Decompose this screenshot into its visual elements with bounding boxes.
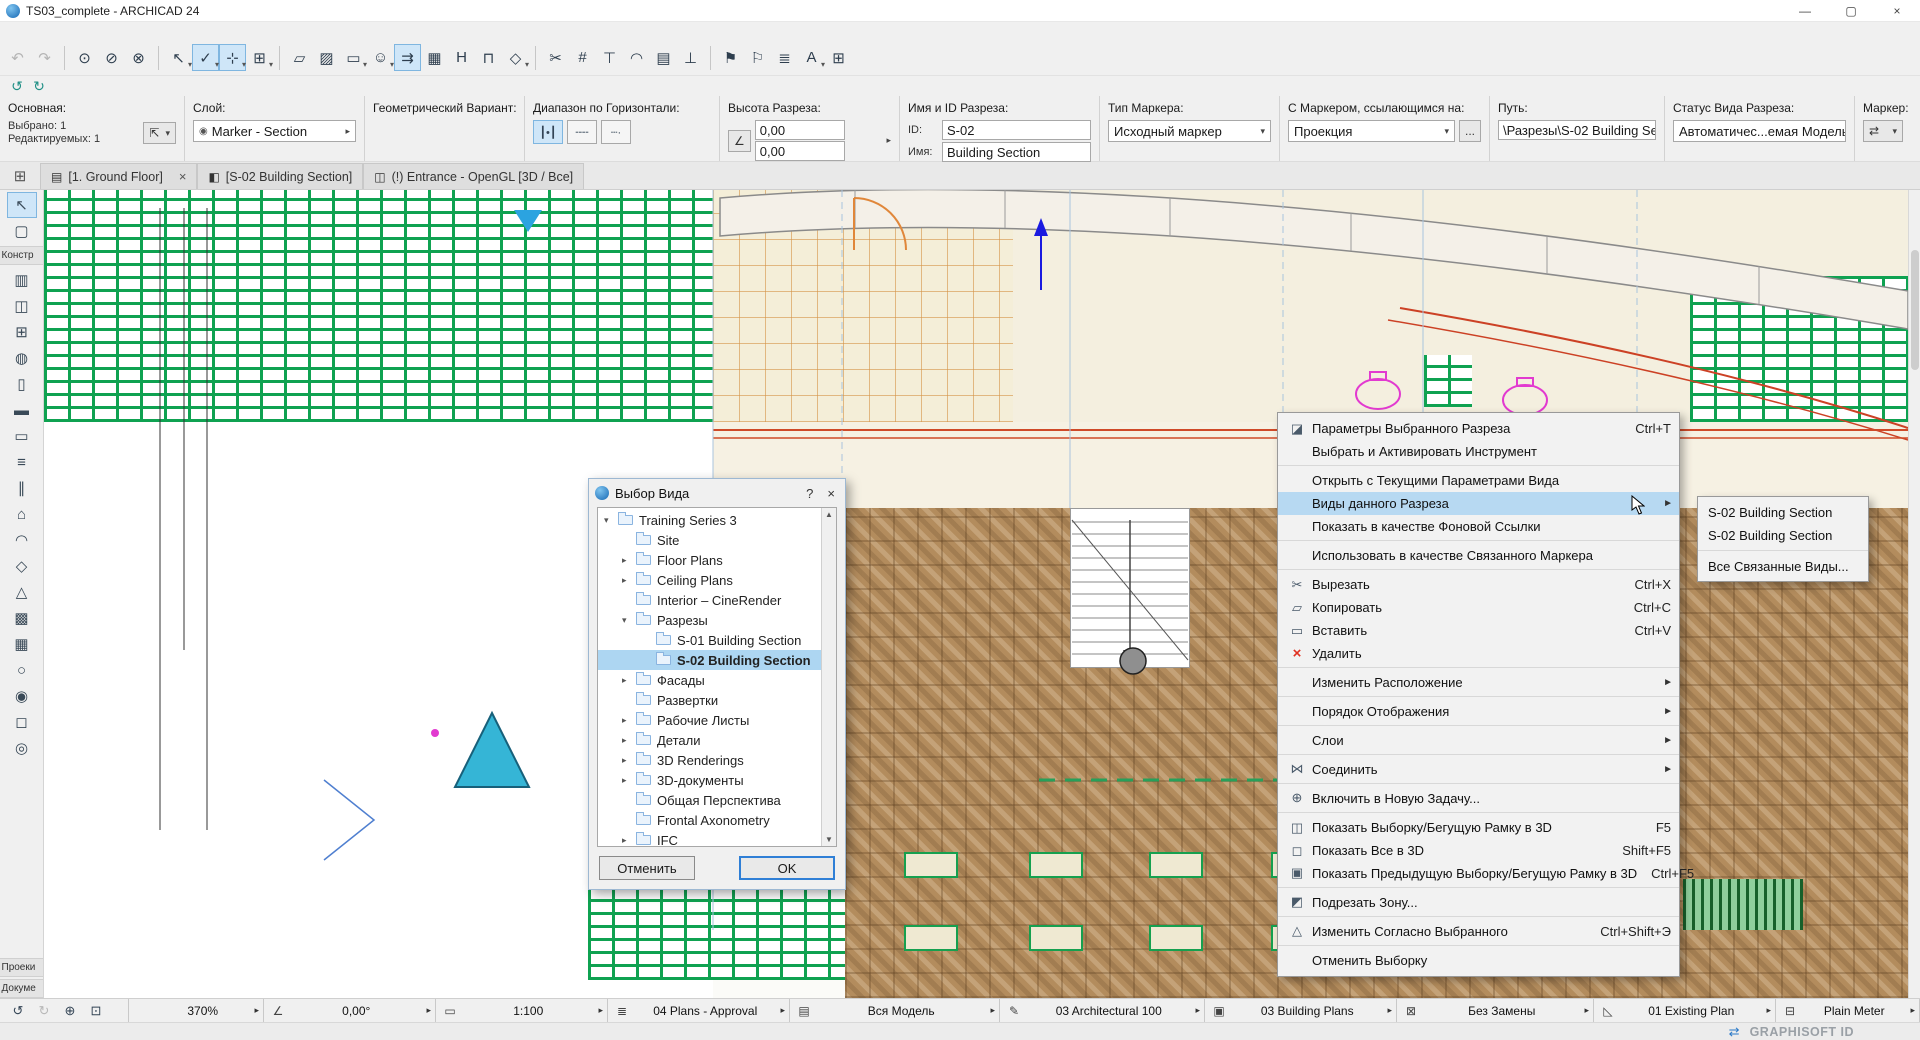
flyout-arrow-icon[interactable]: ▸: [1582, 1005, 1589, 1016]
segment-icon: ⊟: [1780, 1004, 1800, 1018]
slab-tool[interactable]: ▭: [7, 423, 37, 449]
dialog-title: Выбор Вида: [615, 486, 689, 501]
folder-icon: [636, 675, 651, 685]
tree-item-interior-cinerender[interactable]: Interior – CineRender: [598, 590, 836, 610]
infobar-section-basic: Основная: Выбрано: 1 Редактируемых: 1 ⇱▾: [0, 96, 185, 161]
status-bar: ↺↻⊕⊡ 370% ▸ ∠ 0,00° ▸ ▭ 1:100 ▸ ≣ 04 Pla…: [0, 998, 1920, 1022]
folder-icon: [636, 595, 651, 605]
scrollbar-thumb[interactable]: [1911, 250, 1919, 370]
segment-icon: ✎: [1004, 1004, 1024, 1018]
info-bar: Основная: Выбрано: 1 Редактируемых: 1 ⇱▾…: [0, 96, 1920, 162]
menu-item-icon: ▱: [1282, 600, 1312, 616]
vertical-scrollbar[interactable]: [1908, 190, 1920, 998]
flyout-arrow-icon[interactable]: ▸: [1385, 1005, 1392, 1016]
menu-shortcut: Ctrl+Shift+Э: [1586, 924, 1671, 939]
tab-ground-floor[interactable]: ▤ [1. Ground Floor] ×: [40, 163, 197, 189]
update-icon[interactable]: ↻: [28, 77, 50, 95]
arrow-tool[interactable]: ↖: [7, 192, 37, 218]
chevron-down-icon: ▾: [1254, 126, 1265, 137]
folder-icon: [636, 835, 651, 845]
infobar-section-marker-reference: С Маркером, ссылающимся на: Проекция ▾ .…: [1280, 96, 1490, 161]
infobar-section-marker-type: Тип Маркера: Исходный маркер ▾: [1100, 96, 1280, 161]
flyout-arrow-icon[interactable]: ▸: [252, 1005, 259, 1016]
layer-combo[interactable]: ◉ Marker - Section ▸: [193, 120, 356, 142]
brand-bar: ⇄ GRAPHISOFT ID: [0, 1022, 1920, 1040]
more-options-button[interactable]: ...: [1459, 120, 1481, 142]
view-tree: ▾ Training Series 3 Site ▸ Floor Plans ▸…: [597, 507, 837, 847]
section-marker-triangle[interactable]: [455, 713, 529, 787]
tree-item-training-series-3[interactable]: ▾ Training Series 3: [598, 510, 836, 530]
box-tool-icon[interactable]: ▭ ▾: [340, 44, 367, 71]
dimension-style-segment[interactable]: ⊟ Plain Meter ▸: [1776, 999, 1920, 1022]
tab-icon: ◧: [208, 170, 219, 184]
menu-item-copy[interactable]: ▱ Копировать Ctrl+C ►: [1278, 596, 1679, 619]
flag-icon[interactable]: ⚑ ▾: [717, 44, 744, 71]
scroll-up-icon[interactable]: ▲: [825, 510, 833, 519]
tab-entrance-opengl-3d[interactable]: ◫ (!) Entrance - OpenGL [3D / Все] ×: [363, 163, 584, 189]
snap-point-icon[interactable]: ⊙ ▾: [71, 44, 98, 71]
flyout-arrow-icon[interactable]: ▸: [988, 1005, 995, 1016]
palette-group-document[interactable]: Докуме: [0, 979, 44, 998]
menu-item-trim-zone[interactable]: ◩ Подрезать Зону... ►: [1278, 891, 1679, 917]
layers-book-icon[interactable]: ≣ ▾: [771, 44, 798, 71]
menu-item-include-in-new-task[interactable]: ⊕ Включить в Новую Задачу... ►: [1278, 787, 1679, 813]
marquee-tool[interactable]: ▢: [7, 218, 37, 244]
menu-item-icon: △: [1282, 923, 1312, 939]
tree-item-details[interactable]: ▸ Детали: [598, 730, 836, 750]
menu-item-paste[interactable]: ▭ Вставить Ctrl+V ►: [1278, 619, 1679, 642]
menu-item-move[interactable]: Изменить Расположение ►: [1278, 671, 1679, 697]
menu-item-icon: ⋈: [1282, 761, 1312, 777]
flyout-arrow-icon[interactable]: ▸: [1908, 1005, 1915, 1016]
menu-item-section-settings[interactable]: ◪ Параметры Выбранного Разреза Ctrl+T ►: [1278, 417, 1679, 440]
fillet-icon[interactable]: ◠ ▾: [623, 44, 650, 71]
hrange-zero-button[interactable]: ┄·: [601, 120, 631, 144]
tab-icon: ▤: [51, 170, 62, 184]
toolbar-separator[interactable]: ▾: [64, 46, 65, 70]
submenu-arrow-icon: ►: [1663, 735, 1673, 746]
tree-chevron-icon[interactable]: ▾: [604, 515, 618, 526]
infobar-section-view-status: Статус Вида Разреза: Автоматичес...емая …: [1665, 96, 1855, 161]
marker-default-button[interactable]: ⇱▾: [143, 122, 176, 144]
tree-chevron-icon[interactable]: ▸: [622, 755, 636, 766]
context-menu: ◪ Параметры Выбранного Разреза Ctrl+T ► …: [1277, 412, 1680, 977]
zoom-in-icon[interactable]: ⊕: [58, 1001, 82, 1021]
graphisoft-id-label[interactable]: GRAPHISOFT ID: [1750, 1025, 1854, 1039]
undo-icon[interactable]: ↶ ▾: [4, 44, 31, 71]
section-height-icon[interactable]: ∠: [728, 130, 751, 152]
roof-band: [720, 190, 1908, 329]
height-bottom-field[interactable]: 0,00: [755, 141, 845, 161]
tree-chevron-icon[interactable]: ▸: [622, 675, 636, 686]
menu-item-deselect-all[interactable]: Отменить Выборку ►: [1278, 949, 1679, 972]
segment-icon: ▤: [794, 1004, 814, 1018]
split-icon[interactable]: ✂ ▾: [542, 44, 569, 71]
camera-tool[interactable]: ◎: [7, 735, 37, 761]
folder-icon: [636, 735, 651, 745]
select-icon[interactable]: ↖ ▾: [165, 44, 192, 71]
section-name-field[interactable]: Building Section: [942, 142, 1091, 162]
eye-icon: ◉: [199, 126, 208, 137]
tab-s02-building-section[interactable]: ◧ [S-02 Building Section] ×: [197, 163, 363, 189]
menu-item-cut[interactable]: ✂ Вырезать Ctrl+X ►: [1278, 573, 1679, 596]
menu-item-icon: ×: [1282, 645, 1312, 662]
path-field[interactable]: \Разрезы\S-02 Building Section (: [1498, 120, 1656, 140]
tree-item-elevations[interactable]: ▸ Фасады: [598, 670, 836, 690]
close-button[interactable]: ×: [1874, 0, 1920, 21]
flyout-arrow-icon[interactable]: ▸: [596, 1005, 603, 1016]
zoom-level-segment[interactable]: 370% ▸: [129, 999, 264, 1022]
flyout-arrow-icon[interactable]: ▸: [778, 1005, 785, 1016]
menu-item-icon: ✂: [1282, 577, 1312, 593]
tab-overview-button[interactable]: ⊞: [0, 163, 40, 189]
polygon-icon[interactable]: ▱ ▾: [286, 44, 313, 71]
curtain-wall-tool[interactable]: ▦: [7, 631, 37, 657]
intersect-icon[interactable]: ⊥ ▾: [677, 44, 704, 71]
fixture-icon[interactable]: ⊓ ▾: [475, 44, 502, 71]
flyout-arrow-icon[interactable]: ▸: [1193, 1005, 1200, 1016]
segment-icon: ≣: [612, 1004, 632, 1018]
roof-tool[interactable]: ⌂: [7, 501, 37, 527]
walk-mode-icon[interactable]: ⇉ ▾: [394, 44, 421, 71]
tree-item-generic-perspective[interactable]: Общая Перспектива: [598, 790, 836, 810]
snap-guides-icon[interactable]: ✓ ▾: [192, 44, 219, 71]
fit-in-window-icon[interactable]: ⊡: [84, 1001, 108, 1021]
section-id-field[interactable]: S-02: [942, 120, 1091, 140]
toolbar-separator[interactable]: ▾: [158, 46, 159, 70]
door-tool[interactable]: ◫: [7, 293, 37, 319]
menu-item-icon: ⊕: [1282, 790, 1312, 806]
dialog-scrollbar[interactable]: ▲ ▼: [821, 508, 836, 846]
menu-item-select-activate-tool[interactable]: Выбрать и Активировать Инструмент ►: [1278, 440, 1679, 466]
favorites-icon[interactable]: ◇ ▾: [502, 44, 529, 71]
submenu-arrow-icon: ►: [1663, 706, 1673, 717]
hrange-limited-button[interactable]: ╌╌: [567, 120, 597, 144]
marker-type-combo[interactable]: Исходный маркер ▾: [1108, 120, 1271, 142]
submenu-item-all-linked-views[interactable]: Все Связанные Виды...: [1698, 554, 1868, 578]
infobar-section-height: Высота Разреза: ∠ 0,00 0,00 ▸: [720, 96, 900, 161]
marker-reference-combo[interactable]: Проекция ▾: [1288, 120, 1455, 142]
blocks-icon[interactable]: ▦ ▾: [421, 44, 448, 71]
menu-item-icon: ◫: [1282, 820, 1312, 836]
archicad-logo-icon: [595, 486, 609, 500]
view-status-combo[interactable]: Автоматичес...емая Модель ▾: [1673, 120, 1846, 142]
skylight-tool[interactable]: ◍: [7, 345, 37, 371]
red-roof-arc: [1400, 308, 1908, 428]
view-selection-dialog: Выбор Вида ? × ▾ Training Series 3 Site …: [588, 478, 846, 890]
object-tool[interactable]: ○: [7, 657, 37, 683]
ok-button[interactable]: OK: [739, 856, 835, 880]
tree-item-ifc[interactable]: ▸ IFC: [598, 830, 836, 847]
layer-combination-segment[interactable]: ≣ 04 Plans - Approval ▸: [608, 999, 790, 1022]
folder-icon: [636, 615, 651, 625]
grid-element-icon[interactable]: H ▾: [448, 44, 475, 71]
chevron-right-icon[interactable]: ▸: [880, 135, 891, 146]
menu-item-delete[interactable]: × Удалить ►: [1278, 642, 1679, 668]
tool-palette: ↖▢ Констр ▥◫⊞◍▯▬▭≡∥⌂◠◇△▩▦○◉◻◎ Проеки Док…: [0, 190, 44, 998]
selected-count: Выбрано: 1: [8, 120, 100, 133]
hrange-infinite-button[interactable]: ┃•┃: [533, 120, 563, 144]
submenu-arrow-icon: ►: [1663, 677, 1673, 688]
sync-icon[interactable]: ⇄: [1729, 1024, 1740, 1040]
profile-icon[interactable]: ☺ ▾: [367, 44, 394, 71]
menu-shortcut: Ctrl+X: [1621, 577, 1671, 592]
folder-icon: [636, 575, 651, 585]
infobar-section-marker: Маркер: ⇄▾: [1855, 96, 1920, 161]
folder-icon: [636, 535, 651, 545]
minimize-button[interactable]: —: [1782, 0, 1828, 21]
beam-tool[interactable]: ▬: [7, 397, 37, 423]
tab-icon: ◫: [374, 170, 385, 184]
secondary-toolbar: ↺↻: [0, 76, 1920, 96]
dialog-close-icon[interactable]: ×: [827, 486, 835, 501]
structure-filter-segment[interactable]: ▤ Вся Модель ▸: [790, 999, 1000, 1022]
dimension-lines: [160, 208, 207, 830]
menu-item-show-previous-selection-in-3d[interactable]: ▣ Показать Предыдущую Выборку/Бегущую Ра…: [1278, 862, 1679, 888]
flyout-arrow-icon[interactable]: ▸: [1764, 1005, 1771, 1016]
menu-item-open-with-current-view-settings[interactable]: Открыть с Текущими Параметрами Вида ►: [1278, 469, 1679, 492]
menu-item-layers[interactable]: Слои ►: [1278, 729, 1679, 755]
submenu-item-s02-building-section[interactable]: S-02 Building Section: [1698, 500, 1868, 524]
toolbar-separator[interactable]: ▾: [279, 46, 280, 70]
menu-shortcut: Shift+F5: [1608, 843, 1671, 858]
tab-bar: ⊞ ▤ [1. Ground Floor] × ◧ [S-02 Building…: [0, 162, 1920, 190]
level-marker-icon: [514, 210, 542, 232]
mesh-tool[interactable]: △: [7, 579, 37, 605]
folder-icon: [636, 695, 651, 705]
column-tool[interactable]: ▯: [7, 371, 37, 397]
tree-item-floor-plans[interactable]: ▸ Floor Plans: [598, 550, 836, 570]
redo-icon[interactable]: ↷ ▾: [31, 44, 58, 71]
infobar-section-path: Путь: \Разрезы\S-02 Building Section (: [1490, 96, 1665, 161]
flag-outline-icon[interactable]: ⚐ ▾: [744, 44, 771, 71]
dialog-title-bar[interactable]: Выбор Вида ? ×: [589, 479, 845, 507]
tree-item-interior-elevations[interactable]: Развертки: [598, 690, 836, 710]
menu-item-icon: ◪: [1282, 421, 1312, 437]
menu-bar: [0, 22, 1920, 40]
toilet-symbol: [1503, 378, 1547, 415]
segment-icon: ▣: [1209, 1004, 1229, 1018]
window-tool[interactable]: ⊞: [7, 319, 37, 345]
tab-close-icon[interactable]: ×: [179, 169, 187, 184]
editable-count: Редактируемых: 1: [8, 133, 100, 146]
palette-group-views[interactable]: Проеки: [0, 958, 44, 977]
menu-item-icon: ◻: [1282, 843, 1312, 859]
views-submenu: S-02 Building SectionS-02 Building Secti…: [1697, 496, 1869, 582]
tree-chevron-icon[interactable]: ▸: [622, 715, 636, 726]
infobar-section-layer: Слой: ◉ Marker - Section ▸: [185, 96, 365, 161]
adjust-icon[interactable]: # ▾: [569, 44, 596, 71]
submenu-arrow-icon: ►: [1663, 498, 1673, 509]
renovation-override-segment[interactable]: ⊠ Без Замены ▸: [1397, 999, 1594, 1022]
stair-tool[interactable]: ≡: [7, 449, 37, 475]
section-line-chevron: [324, 780, 374, 860]
scroll-down-icon[interactable]: ▼: [825, 835, 833, 844]
segment-icon: ▭: [440, 1004, 460, 1018]
folder-icon: [636, 755, 651, 765]
menu-shortcut: Ctrl+V: [1621, 623, 1671, 638]
menu-item-icon: ◩: [1282, 894, 1312, 910]
renovation-filter-segment[interactable]: ◺ 01 Existing Plan ▸: [1594, 999, 1776, 1022]
submenu-arrow-icon: ►: [1663, 764, 1673, 775]
title-bar: TS03_complete - ARCHICAD 24 — ▢ ×: [0, 0, 1920, 22]
folder-icon: [636, 775, 651, 785]
orientation-segment[interactable]: ∠ 0,00° ▸: [264, 999, 436, 1022]
tree-chevron-icon[interactable]: ▸: [622, 555, 636, 566]
segment-icon: ∠: [268, 1004, 288, 1018]
folder-icon: [618, 515, 633, 525]
menu-item-display-order[interactable]: Порядок Отображения ►: [1278, 700, 1679, 726]
folder-icon: [656, 655, 671, 665]
menu-item-icon: ▣: [1282, 865, 1312, 881]
lamp-tool[interactable]: ◉: [7, 683, 37, 709]
folder-icon: [636, 815, 651, 825]
menu-item-modify-according-to-selected[interactable]: △ Изменить Согласно Выбранного Ctrl+Shif…: [1278, 920, 1679, 946]
menu-item-views-of-this-section[interactable]: Виды данного Разреза ►: [1278, 492, 1679, 515]
snap-cursor-icon[interactable]: ⊹ ▾: [219, 44, 246, 71]
toolbar-separator[interactable]: ▾: [710, 46, 711, 70]
chevron-right-icon: ▸: [339, 126, 350, 137]
railing-tool[interactable]: ∥: [7, 475, 37, 501]
menu-shortcut: Ctrl+F5: [1637, 866, 1694, 881]
tree-chevron-icon[interactable]: ▾: [622, 615, 636, 626]
chevron-down-icon: ▾: [1438, 126, 1449, 137]
tree-chevron-icon[interactable]: ▸: [622, 575, 636, 586]
segment-icon: ◺: [1598, 1004, 1618, 1018]
menu-item-use-as-linked-marker[interactable]: Использовать в качестве Связанного Марке…: [1278, 544, 1679, 570]
tree-item-worksheets[interactable]: ▸ Рабочие Листы: [598, 710, 836, 730]
infobar-section-name-id: Имя и ID Разреза: ID: S-02 Имя: Building…: [900, 96, 1100, 161]
zone-tool[interactable]: ▩: [7, 605, 37, 631]
menu-shortcut: Ctrl+C: [1620, 600, 1671, 615]
view-forward-icon[interactable]: ↻: [32, 1001, 56, 1021]
folder-icon: [656, 635, 671, 645]
menu-item-show-all-in-3d[interactable]: ◻ Показать Все в 3D Shift+F5 ►: [1278, 839, 1679, 862]
height-top-field[interactable]: 0,00: [755, 120, 845, 140]
wall-tool[interactable]: ▥: [7, 267, 37, 293]
menu-item-show-as-trace-reference[interactable]: Показать в качестве Фоновой Ссылки ►: [1278, 515, 1679, 541]
pen-set-segment[interactable]: ✎ 03 Architectural 100 ▸: [1000, 999, 1205, 1022]
tree-item-3d-documents[interactable]: ▸ 3D-документы: [598, 770, 836, 790]
flyout-arrow-icon[interactable]: ▸: [424, 1005, 431, 1016]
suspend-groups-icon[interactable]: ⊘ ▾: [98, 44, 125, 71]
shell-tool[interactable]: ◠: [7, 527, 37, 553]
tree-item-ceiling-plans[interactable]: ▸ Ceiling Plans: [598, 570, 836, 590]
menu-item-connect[interactable]: ⋈ Соединить ►: [1278, 758, 1679, 784]
tree-item-s02-building-section[interactable]: S-02 Building Section: [598, 650, 836, 670]
palette-group-design[interactable]: Констр: [0, 246, 44, 265]
menu-item-show-selection-in-3d[interactable]: ◫ Показать Выборку/Бегущую Рамку в 3D F5…: [1278, 816, 1679, 839]
tree-chevron-icon[interactable]: ▸: [622, 735, 636, 746]
submenu-item-s02-building-section-2[interactable]: S-02 Building Section: [1698, 524, 1868, 551]
window-title: TS03_complete - ARCHICAD 24: [26, 4, 199, 18]
archicad-logo-icon: [6, 4, 20, 18]
dialog-help-button[interactable]: ?: [806, 486, 813, 501]
folder-icon: [636, 555, 651, 565]
scale-segment[interactable]: ▭ 1:100 ▸: [436, 999, 608, 1022]
main-toolbar: ↶ ▾ ↷ ▾ ▾ ⊙ ▾ ⊘ ▾ ⊗ ▾ ▾ ↖ ▾ ✓ ▾ ⊹ ▾ ⊞ ▾ …: [0, 40, 1920, 76]
menu-shortcut: F5: [1642, 820, 1671, 835]
rebuild-icon[interactable]: ↺: [6, 77, 28, 95]
graphic-override-segment[interactable]: ▣ 03 Building Plans ▸: [1205, 999, 1397, 1022]
cancel-button[interactable]: Отменить: [599, 856, 695, 880]
autogroup-icon[interactable]: ⊗ ▾: [125, 44, 152, 71]
selection-dot: [431, 729, 439, 737]
tree-chevron-icon[interactable]: ▸: [622, 835, 636, 846]
morph-tool[interactable]: ◇: [7, 553, 37, 579]
tree-item-3d-renderings[interactable]: ▸ 3D Renderings: [598, 750, 836, 770]
column-circle: [1120, 648, 1146, 674]
infobar-section-horizontal-range: Диапазон по Горизонтали: ┃•┃╌╌┄·: [525, 96, 720, 161]
menu-item-icon: ▭: [1282, 623, 1312, 639]
folder-icon: [636, 795, 651, 805]
grid-dialog-icon[interactable]: ⊞ ▾: [825, 44, 852, 71]
marker-style-icon[interactable]: A ▾: [798, 44, 825, 71]
resize-icon[interactable]: ▤ ▾: [650, 44, 677, 71]
fill-icon[interactable]: ▨ ▾: [313, 44, 340, 71]
folder-icon: [636, 715, 651, 725]
tree-item-frontal-axonometry[interactable]: Frontal Axonometry: [598, 810, 836, 830]
infobar-section-geometry: Геометрический Вариант:: [365, 96, 525, 161]
segment-icon: ⊠: [1401, 1004, 1421, 1018]
menu-shortcut: Ctrl+T: [1621, 421, 1671, 436]
opening-tool[interactable]: ◻: [7, 709, 37, 735]
marker-button[interactable]: ⇄▾: [1863, 120, 1903, 142]
view-back-icon[interactable]: ↺: [6, 1001, 30, 1021]
tsquare-icon[interactable]: ⊤ ▾: [596, 44, 623, 71]
grid-snap-icon[interactable]: ⊞ ▾: [246, 44, 273, 71]
tree-item-sections[interactable]: ▾ Разрезы: [598, 610, 836, 630]
tree-item-site[interactable]: Site: [598, 530, 836, 550]
tree-item-s01-building-section[interactable]: S-01 Building Section: [598, 630, 836, 650]
toilet-symbol: [1356, 372, 1400, 409]
toolbar-separator[interactable]: ▾: [535, 46, 536, 70]
tree-chevron-icon[interactable]: ▸: [622, 775, 636, 786]
maximize-button[interactable]: ▢: [1828, 0, 1874, 21]
